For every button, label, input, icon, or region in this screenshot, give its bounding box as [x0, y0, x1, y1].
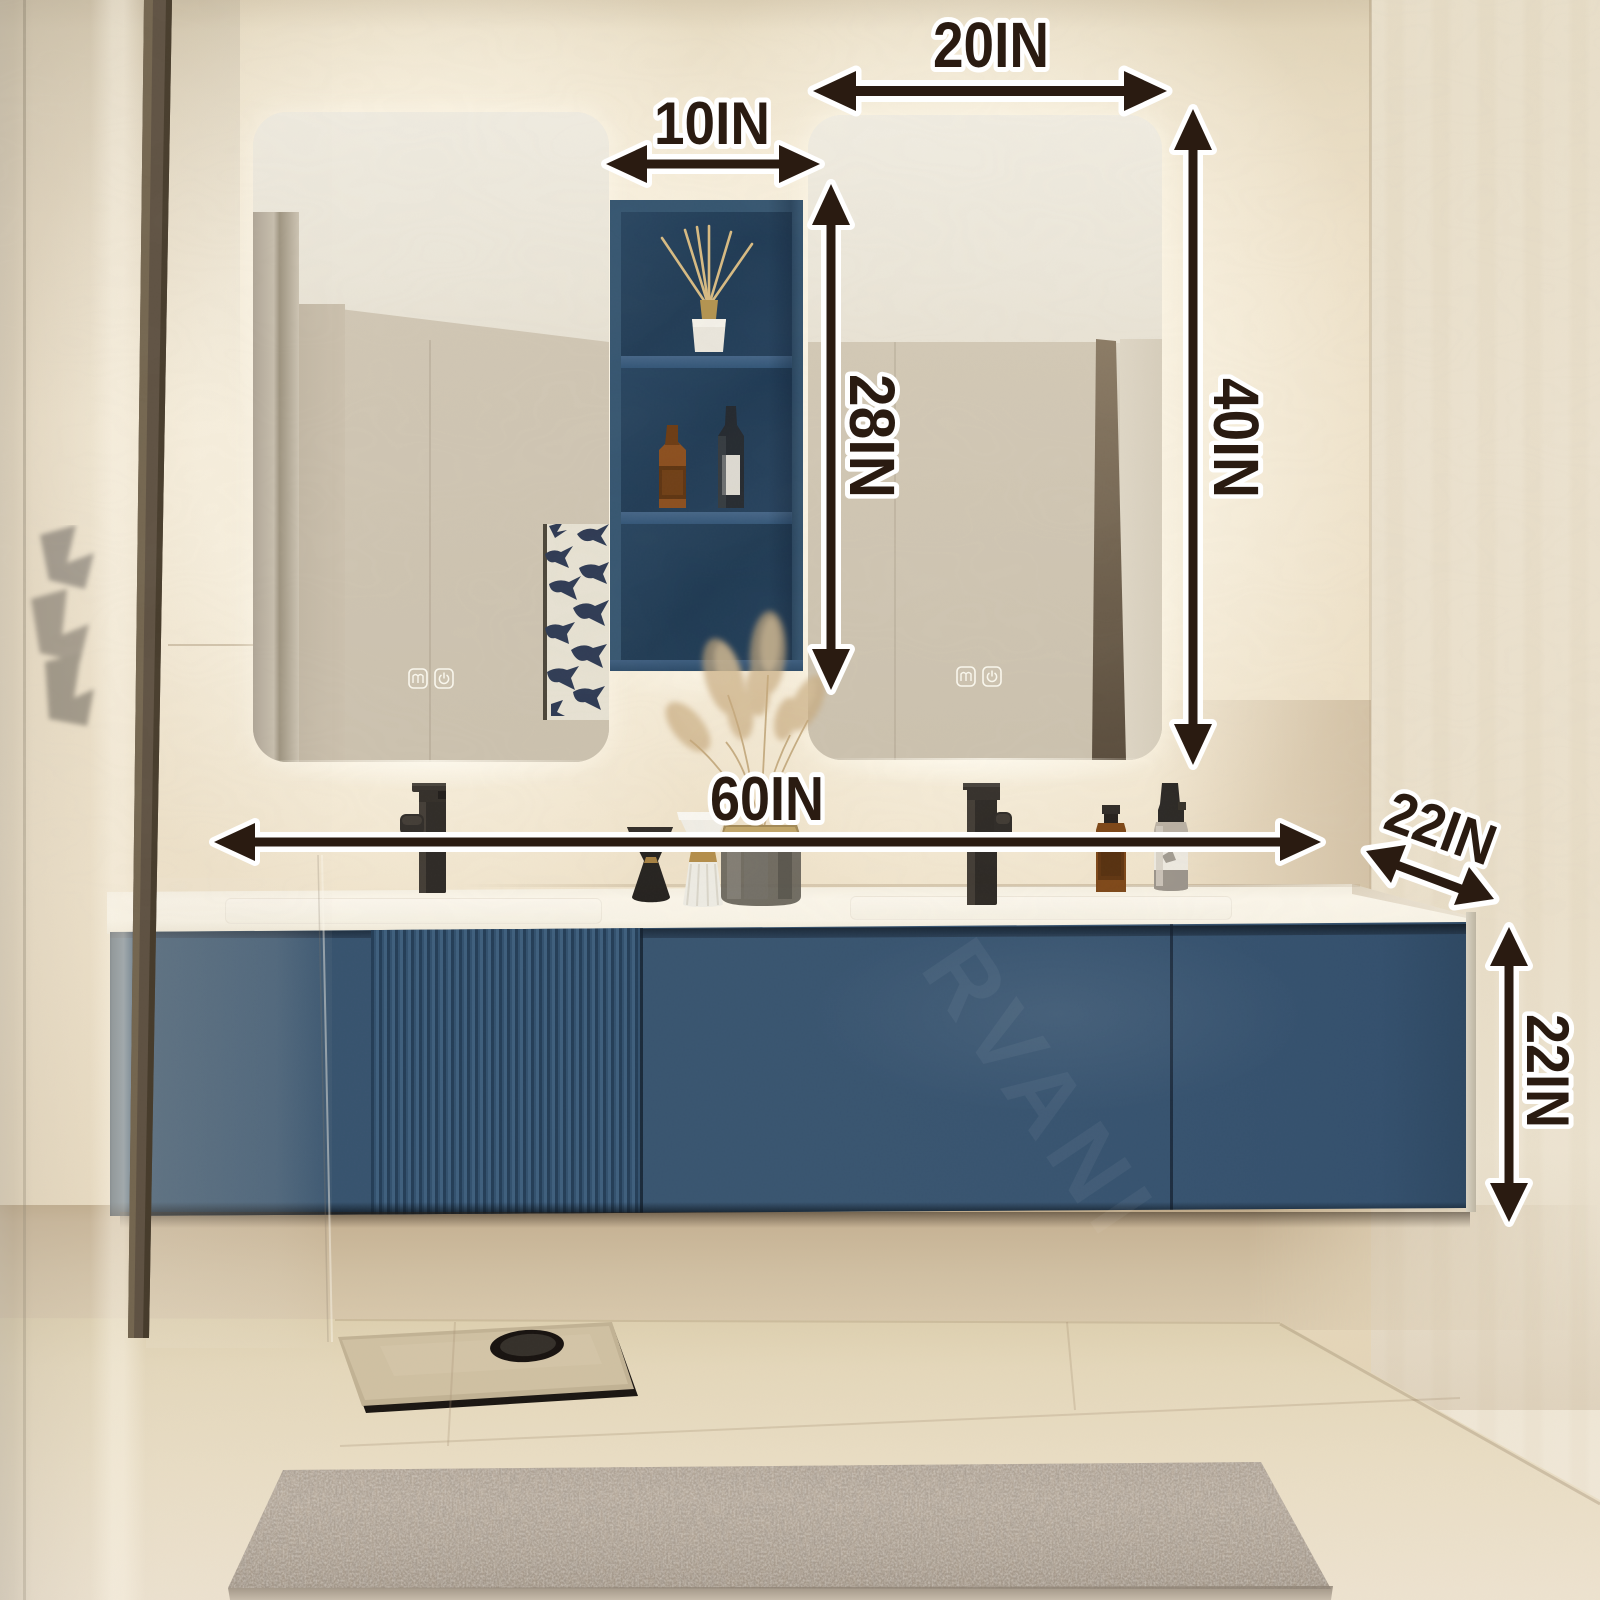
svg-text:20IN: 20IN — [933, 9, 1049, 81]
svg-text:40IN: 40IN — [1200, 378, 1272, 498]
svg-text:10IN: 10IN — [654, 90, 770, 157]
svg-text:28IN: 28IN — [836, 374, 908, 498]
svg-text:22IN: 22IN — [1514, 1014, 1581, 1128]
svg-text:60IN: 60IN — [710, 765, 824, 834]
